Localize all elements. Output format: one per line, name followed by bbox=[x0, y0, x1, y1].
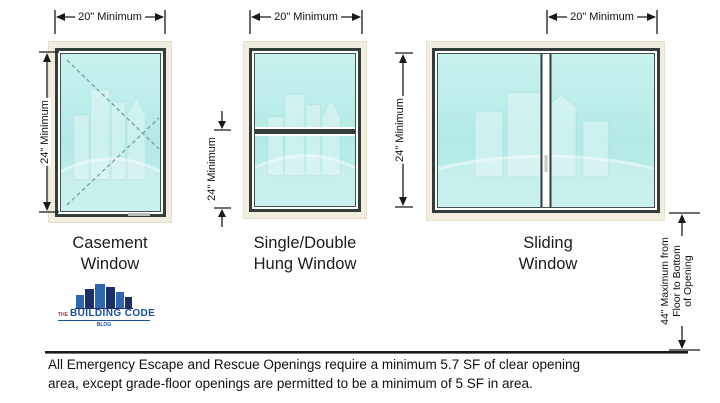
caption-line: Sliding bbox=[468, 233, 628, 254]
logo-prefix: THE bbox=[58, 312, 68, 319]
sliding-window-sash bbox=[435, 51, 657, 210]
caption-line: Window bbox=[468, 254, 628, 275]
sill-height-line3: of Opening bbox=[683, 237, 695, 325]
hung-window-diagram bbox=[243, 41, 367, 219]
casement-swing-direction-lines bbox=[61, 54, 160, 211]
sliding-window-frame bbox=[432, 48, 660, 213]
caption-line: Single/Double bbox=[225, 233, 385, 254]
hung-window-meeting-rail bbox=[254, 127, 356, 136]
casement-window-sash bbox=[58, 51, 163, 214]
caption-line: Window bbox=[30, 254, 190, 275]
sliding-window-diagram bbox=[426, 41, 665, 221]
logo-title-row: THE BUILDING CODE bbox=[58, 308, 156, 319]
building-code-blog-logo: THE BUILDING CODE BLOG bbox=[58, 283, 156, 328]
note-text: All Emergency Escape and Rescue Openings… bbox=[48, 356, 696, 393]
note-line1: All Emergency Escape and Rescue Openings… bbox=[48, 356, 696, 375]
sill-height-dimension-label: 44" Maximum from Floor to Bottom of Open… bbox=[660, 237, 695, 325]
logo-underline bbox=[58, 320, 150, 321]
casement-height-dimension-label: 24" Minimum bbox=[39, 98, 51, 166]
hung-window-frame bbox=[249, 48, 361, 212]
hung-height-dimension-label: 24" Minimum bbox=[206, 135, 218, 203]
hung-window-glass bbox=[254, 53, 356, 207]
casement-window-diagram bbox=[48, 41, 172, 223]
sliding-window-handle bbox=[545, 155, 548, 172]
logo-skyline-icon bbox=[75, 283, 133, 309]
caption-line: Hung Window bbox=[225, 254, 385, 275]
hung-window-caption: Single/Double Hung Window bbox=[225, 233, 385, 275]
sliding-height-dimension-label: 24" Minimum bbox=[394, 96, 406, 164]
sliding-window-divider bbox=[541, 53, 552, 208]
caption-line: Casement bbox=[30, 233, 190, 254]
casement-window-handle bbox=[128, 213, 150, 216]
casement-window-glass bbox=[60, 53, 161, 212]
casement-window-caption: Casement Window bbox=[30, 233, 190, 275]
note-line2: area, except grade-floor openings are pe… bbox=[48, 375, 696, 394]
logo-title: BUILDING CODE bbox=[70, 308, 155, 319]
sliding-window-caption: Sliding Window bbox=[468, 233, 628, 275]
casement-width-dimension-label: 20" Minimum bbox=[75, 11, 145, 23]
casement-window-frame bbox=[55, 48, 166, 217]
hung-width-dimension-label: 20" Minimum bbox=[271, 11, 341, 23]
sliding-window-glass bbox=[437, 53, 655, 208]
logo-subtitle: BLOG bbox=[58, 322, 150, 328]
sill-height-line1: 44" Maximum from bbox=[660, 237, 672, 325]
sliding-width-dimension-label: 20" Minimum bbox=[567, 11, 637, 23]
egress-window-diagram: 20" Minimum 20" Minimum 20" Minimum 24" … bbox=[0, 0, 720, 403]
hung-window-sash bbox=[252, 51, 358, 209]
